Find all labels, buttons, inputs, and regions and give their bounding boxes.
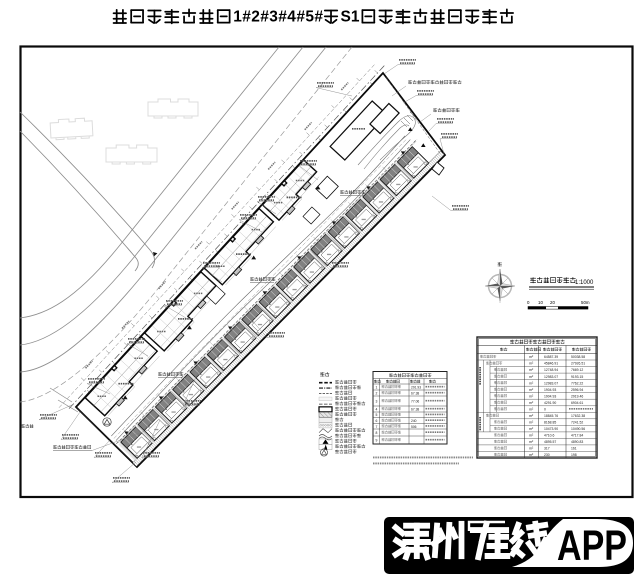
- svg-text:APP: APP: [557, 522, 627, 570]
